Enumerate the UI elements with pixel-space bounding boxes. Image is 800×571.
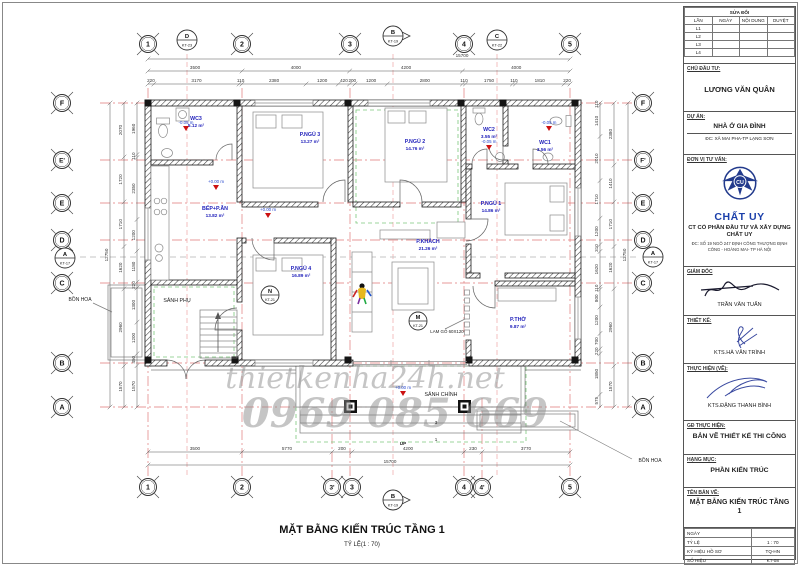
svg-text:230: 230 [469, 446, 477, 451]
svg-text:3': 3' [329, 484, 335, 491]
project-label: DỰ ÁN: [687, 114, 792, 120]
stage-section: GĐ THỰC HIỆN: BẢN VẼ THIẾT KẾ THI CÔNG [684, 421, 795, 455]
svg-text:110: 110 [510, 78, 518, 83]
svg-text:1: 1 [146, 484, 150, 491]
revision-cell [712, 49, 740, 57]
svg-text:220: 220 [147, 78, 155, 83]
room-label: WC13.56 m² [537, 140, 554, 152]
elevation-marker: -0.05 m [542, 120, 557, 131]
svg-text:2800: 2800 [420, 78, 431, 83]
room-label: P.KHÁCH21.26 m² [416, 238, 440, 251]
revision-col: LẦN [685, 17, 713, 25]
annotation-text: LAM GỖ 60X120 [430, 329, 464, 334]
svg-text:KT-21: KT-21 [413, 324, 423, 328]
svg-text:KT-23: KT-23 [182, 44, 192, 48]
room-label: WC23.55 m² [481, 127, 498, 139]
svg-text:4: 4 [462, 484, 466, 491]
grid-bubble: 2 [231, 476, 253, 498]
grid-bubble: F [51, 92, 73, 114]
annotation-text: BỒN HOA [68, 296, 92, 303]
section-marker: CKT-22 [487, 30, 507, 50]
svg-text:1750: 1750 [484, 78, 495, 83]
drawing-name-section: TÊN BẢN VẼ: MẶT BẰNG KIẾN TRÚC TẦNG 1 [684, 488, 795, 528]
grid-bubble: E' [51, 149, 73, 171]
svg-text:KT-17: KT-17 [648, 261, 658, 265]
svg-text:1570: 1570 [131, 381, 136, 392]
room-label: P.NGỦ 416.89 m² [291, 265, 312, 278]
svg-text:3770: 3770 [521, 446, 532, 451]
svg-text:4200: 4200 [403, 446, 414, 451]
svg-text:P.NGỦ 4: P.NGỦ 4 [291, 265, 312, 272]
grid-bubble: D [51, 229, 73, 251]
svg-text:A: A [59, 404, 64, 411]
svg-text:420: 420 [340, 78, 348, 83]
svg-text:F: F [641, 100, 646, 107]
svg-text:21.26 m²: 21.26 m² [419, 246, 438, 251]
info-table: NGÀY TỶ LỆ1 : 70 KÝ HIỆU HỒ SƠTQ-HN SỐ H… [684, 528, 795, 565]
svg-text:110: 110 [594, 284, 599, 292]
svg-text:1410: 1410 [608, 178, 613, 189]
info-label: TỶ LỆ [685, 538, 752, 547]
svg-text:4200: 4200 [401, 65, 412, 70]
svg-text:110: 110 [131, 152, 136, 160]
grid-bubble: 1 [137, 476, 159, 498]
revision-col: NỘI DUNG [740, 17, 768, 25]
svg-text:2070: 2070 [118, 124, 123, 135]
room-label: P.NGỦ 313.27 m² [300, 131, 321, 144]
section-marker: BKT-19 [383, 26, 410, 46]
room-label: SẢNH CHÍNH [425, 391, 458, 398]
svg-text:700: 700 [594, 337, 599, 345]
consultant-section: ĐƠN VỊ TƯ VẤN: CU CHẤT UY CT CỔ PHẦN ĐẦU… [684, 155, 795, 267]
svg-text:A: A [640, 404, 645, 411]
room-label: P.NGỦ 214.76 m² [405, 138, 426, 151]
project-address: ĐC: XÃ MAI PHA-TP LẠNG SƠN [687, 133, 792, 141]
grid-bubble: C [51, 272, 73, 294]
revision-title: SỬA ĐỔI [685, 8, 795, 17]
floor-plan-svg: thietkenha24h.net 0969 085 669 12345123'… [0, 0, 680, 566]
designer-signature [695, 324, 785, 349]
svg-text:1200: 1200 [131, 332, 136, 343]
grid-bubble: B [51, 352, 73, 374]
svg-text:4000: 4000 [511, 65, 522, 70]
svg-text:+0.00 m: +0.00 m [395, 385, 411, 390]
logo-monogram: CU [736, 180, 744, 186]
svg-text:C: C [59, 280, 64, 287]
svg-text:310: 310 [594, 244, 599, 252]
dimension-row: 2203170110238012004202001200280011017501… [146, 78, 573, 86]
svg-text:3500: 3500 [190, 65, 201, 70]
director-signature [695, 275, 785, 301]
svg-text:1960: 1960 [131, 123, 136, 134]
svg-text:3: 3 [348, 41, 352, 48]
grid-bubble: 4' [471, 476, 493, 498]
owner-section: CHỦ ĐẦU TƯ: LƯƠNG VĂN QUÂN [684, 64, 795, 112]
room-label: P.THỜ9.87 m² [510, 315, 527, 329]
revision-row-label: L1 [685, 25, 713, 33]
svg-text:12750: 12750 [622, 248, 627, 261]
revision-row-label: L3 [685, 41, 713, 49]
info-label: NGÀY [685, 529, 752, 538]
section-marker: BKT-19 [383, 490, 410, 510]
svg-text:1570: 1570 [608, 381, 613, 392]
watermark-phone: 0969 085 669 [242, 390, 548, 437]
svg-text:P.NGỦ 2: P.NGỦ 2 [405, 138, 426, 145]
consultant-label: ĐƠN VỊ TƯ VẤN: [687, 157, 792, 163]
svg-text:E: E [641, 200, 646, 207]
info-value [751, 529, 794, 538]
revision-cell [740, 33, 768, 41]
grid-bubble: E [632, 192, 654, 214]
director-name: TRẦN VĂN TUẤN [687, 302, 792, 308]
svg-text:WC1: WC1 [539, 140, 551, 146]
svg-text:12750: 12750 [104, 248, 109, 261]
wood-louver [465, 290, 470, 335]
svg-text:1620: 1620 [594, 264, 599, 275]
svg-text:3170: 3170 [191, 78, 202, 83]
revision-row-label: L2 [685, 33, 713, 41]
floor-plan: thietkenha24h.net 0969 085 669 12345123'… [0, 0, 680, 566]
revision-cell [712, 25, 740, 33]
grid-bubble: B [632, 352, 654, 374]
svg-text:+0.00 m: +0.00 m [208, 179, 224, 184]
svg-text:D: D [640, 237, 645, 244]
svg-text:-0.05 m: -0.05 m [482, 139, 497, 144]
detail-marker: MKT-21 [409, 312, 427, 330]
svg-text:3.56 m²: 3.56 m² [537, 147, 554, 152]
svg-text:5: 5 [568, 41, 572, 48]
svg-text:F': F' [640, 157, 646, 164]
revision-row-label: L4 [685, 49, 713, 57]
annotation-text: BỒN HOA [638, 457, 662, 464]
svg-text:SẢNH PHỤ: SẢNH PHỤ [163, 297, 191, 304]
grid-bubble: C [632, 272, 654, 294]
company-logo: CU [687, 164, 792, 211]
detail-marker: NKT-21 [261, 286, 279, 304]
svg-text:2010: 2010 [594, 153, 599, 164]
title-block: SỬA ĐỔI LẦN NGÀY NỘI DUNG DUYỆT L1L2L3L4… [683, 6, 796, 560]
revision-cell [740, 41, 768, 49]
company-address: ĐC: SỐ 19 NGÕ 247 ĐỊNH CÔNG THƯỢNG ĐỊNH … [687, 241, 792, 252]
svg-text:1: 1 [146, 41, 150, 48]
svg-text:110: 110 [237, 78, 245, 83]
room-label: BẾP+P.ĂN13.82 m² [202, 205, 228, 218]
revision-cell [740, 49, 768, 57]
svg-text:2960: 2960 [608, 322, 613, 333]
director-section: GIÁM ĐỐC TRẦN VĂN TUẤN [684, 267, 795, 316]
project-section: DỰ ÁN: NHÀ Ở GIA ĐÌNH ĐC: XÃ MAI PHA-TP … [684, 112, 795, 155]
svg-text:-0.05 m: -0.05 m [542, 120, 557, 125]
svg-text:13.27 m²: 13.27 m² [301, 139, 320, 144]
stage-label: GĐ THỰC HIỆN: [687, 423, 792, 429]
grid-bubble: 4 [453, 33, 475, 55]
svg-text:KT-17: KT-17 [60, 262, 70, 266]
grid-bubble: 1 [137, 33, 159, 55]
grid-bubble: 5 [559, 33, 581, 55]
svg-text:800: 800 [594, 294, 599, 302]
category-value: PHẦN KIẾN TRÚC [687, 467, 792, 474]
svg-text:SẢNH CHÍNH: SẢNH CHÍNH [425, 391, 458, 398]
svg-text:1710: 1710 [594, 194, 599, 205]
designer-name: KTS.HÀ VĂN TRÌNH [687, 350, 792, 356]
svg-text:220: 220 [131, 281, 136, 289]
svg-text:1810: 1810 [535, 78, 546, 83]
drafter-name: KTS.ĐẶNG THANH BÌNH [687, 403, 792, 409]
svg-text:14.86 m²: 14.86 m² [482, 208, 501, 213]
svg-text:5770: 5770 [282, 446, 293, 451]
svg-text:15700: 15700 [456, 53, 469, 58]
elevation-marker: +0.00 m [260, 207, 276, 218]
svg-text:1620: 1620 [118, 262, 123, 273]
grid-bubble: 2 [231, 33, 253, 55]
svg-text:3: 3 [350, 484, 354, 491]
dimension-total-top: 15700 [146, 53, 573, 61]
project-name: NHÀ Ở GIA ĐÌNH [687, 123, 792, 130]
drafter-section: THỰC HIỆN (VẼ): KTS.ĐẶNG THANH BÌNH [684, 364, 795, 421]
svg-text:16.89 m²: 16.89 m² [292, 273, 311, 278]
svg-text:2: 2 [240, 484, 244, 491]
info-value: 1 : 70 [751, 538, 794, 547]
elevation-marker: -0.05 m [482, 139, 497, 150]
svg-text:4': 4' [479, 484, 485, 491]
owner-label: CHỦ ĐẦU TƯ: [687, 66, 792, 72]
grid-bubble: A [51, 396, 73, 418]
info-label: KÝ HIỆU HỒ SƠ [685, 547, 752, 556]
stage-value: BẢN VẼ THIẾT KẾ THI CÔNG [687, 433, 792, 440]
drawing-name-label: TÊN BẢN VẼ: [687, 490, 792, 496]
annotation-text: 1 [435, 437, 438, 442]
drawing-scale: TỶ LỆ(1 : 70) [344, 540, 380, 548]
svg-text:4: 4 [462, 41, 466, 48]
svg-text:KT-22: KT-22 [492, 44, 502, 48]
grid-bubble: 3 [339, 33, 361, 55]
svg-text:5: 5 [568, 484, 572, 491]
svg-text:P.THỜ: P.THỜ [510, 315, 526, 323]
grid-bubble: F [632, 92, 654, 114]
svg-text:D: D [185, 34, 189, 40]
revision-cell [767, 41, 795, 49]
svg-text:1200: 1200 [366, 78, 377, 83]
owner-name: LƯƠNG VĂN QUÂN [687, 85, 792, 94]
dimension-total-bottom: 15700 [146, 459, 573, 467]
revision-cell [712, 41, 740, 49]
svg-text:9.87 m²: 9.87 m² [510, 324, 527, 329]
svg-text:2350: 2350 [131, 183, 136, 194]
svg-text:1300: 1300 [131, 300, 136, 311]
svg-text:B: B [59, 360, 64, 367]
svg-text:P.NGỦ 1: P.NGỦ 1 [481, 200, 502, 207]
svg-text:C: C [640, 280, 645, 287]
info-label: SỐ HIỆU [685, 556, 752, 565]
svg-text:220: 220 [594, 347, 599, 355]
grid-bubble: 5 [559, 476, 581, 498]
grid-bubble: A [632, 396, 654, 418]
svg-text:1720: 1720 [118, 174, 123, 185]
svg-text:1200: 1200 [131, 230, 136, 241]
svg-text:110: 110 [594, 100, 599, 108]
svg-text:575: 575 [594, 396, 599, 404]
dimension-row: 3500400042004000 [146, 65, 573, 73]
svg-text:4000: 4000 [291, 65, 302, 70]
category-label: HẠNG MỤC: [687, 457, 792, 463]
annotation-text: UP [400, 441, 406, 446]
svg-text:1620: 1620 [608, 262, 613, 273]
svg-text:200: 200 [348, 78, 356, 83]
svg-text:1570: 1570 [118, 381, 123, 392]
svg-text:2: 2 [240, 41, 244, 48]
svg-text:1200: 1200 [594, 226, 599, 237]
svg-text:-0.05 m: -0.05 m [179, 120, 194, 125]
svg-text:E: E [60, 200, 65, 207]
grid-bubble: 4 [453, 476, 475, 498]
svg-text:1200: 1200 [594, 315, 599, 326]
svg-text:1710: 1710 [608, 219, 613, 230]
svg-text:1710: 1710 [118, 219, 123, 230]
svg-text:1200: 1200 [317, 78, 328, 83]
svg-text:D: D [59, 237, 64, 244]
svg-text:M: M [416, 315, 421, 321]
svg-text:15700: 15700 [384, 459, 397, 464]
svg-text:B: B [391, 30, 395, 36]
svg-text:E': E' [59, 157, 65, 164]
svg-text:2380: 2380 [608, 129, 613, 140]
room-label: SẢNH PHỤ [163, 297, 191, 304]
svg-text:200: 200 [338, 446, 346, 451]
svg-text:P.KHÁCH: P.KHÁCH [416, 238, 440, 245]
revision-cell [767, 49, 795, 57]
revision-col: NGÀY [712, 17, 740, 25]
svg-text:KT-19: KT-19 [388, 40, 398, 44]
info-value: KT-08 [751, 556, 794, 565]
brand-name: CHẤT UY [687, 211, 792, 223]
svg-text:P.NGỦ 3: P.NGỦ 3 [300, 131, 321, 138]
svg-text:+0.00 m: +0.00 m [260, 207, 276, 212]
svg-text:BẾP+P.ĂN: BẾP+P.ĂN [202, 205, 228, 212]
revision-table: SỬA ĐỔI LẦN NGÀY NỘI DUNG DUYỆT L1L2L3L4 [684, 7, 795, 64]
room-label: P.NGỦ 114.86 m² [481, 200, 502, 213]
svg-text:3500: 3500 [190, 446, 201, 451]
svg-text:1180: 1180 [131, 261, 136, 271]
revision-col: DUYỆT [767, 17, 795, 25]
category-section: HẠNG MỤC: PHẦN KIẾN TRÚC [684, 455, 795, 488]
svg-text:N: N [268, 289, 272, 295]
svg-text:110: 110 [460, 78, 468, 83]
svg-text:KT-19: KT-19 [388, 504, 398, 508]
grid-bubble: E [51, 192, 73, 214]
svg-text:220: 220 [563, 78, 571, 83]
svg-text:13.82 m²: 13.82 m² [206, 213, 225, 218]
svg-text:KT-21: KT-21 [265, 298, 275, 302]
svg-text:WC2: WC2 [483, 127, 495, 133]
grid-bubble: 3 [341, 476, 363, 498]
elevation-marker: +0.00 m [208, 179, 224, 190]
designer-section: THIẾT KẾ: KTS.HÀ VĂN TRÌNH [684, 316, 795, 364]
svg-text:F: F [60, 100, 65, 107]
drawing-sheet: { "sheet": { "title": "MẶT BẰNG KIẾN TRÚ… [0, 0, 800, 566]
section-marker: AKT-17 [55, 248, 75, 268]
svg-text:14.76 m²: 14.76 m² [406, 146, 425, 151]
info-value: TQ-HN [751, 547, 794, 556]
revision-cell [712, 33, 740, 41]
grid-bubble: F' [632, 149, 654, 171]
revision-cell [767, 33, 795, 41]
drawing-name-value: MẶT BẰNG KIẾN TRÚC TẦNG 1 [687, 499, 792, 517]
drawing-title: MẶT BẰNG KIẾN TRÚC TẦNG 1 [279, 523, 445, 536]
svg-text:1850: 1850 [594, 368, 599, 379]
revision-cell [767, 25, 795, 33]
svg-text:450: 450 [131, 355, 136, 363]
section-marker: DKT-23 [177, 30, 197, 50]
svg-text:2960: 2960 [118, 322, 123, 333]
svg-text:B: B [640, 360, 645, 367]
svg-text:B: B [391, 494, 395, 500]
svg-text:2380: 2380 [269, 78, 280, 83]
section-marker: AKT-17 [643, 247, 663, 267]
drafter-signature [695, 372, 785, 402]
dimension-row: 3500577020042002303770 [146, 446, 573, 454]
grid-bubble: 3' [321, 476, 343, 498]
revision-cell [740, 25, 768, 33]
svg-text:1410: 1410 [594, 115, 599, 126]
watermarks: thietkenha24h.net 0969 085 669 [225, 361, 548, 437]
annotation-text: 3 [435, 420, 438, 425]
company-name: CT CỔ PHẦN ĐẦU TƯ VÀ XÂY DỰNG CHẤT UY [687, 225, 792, 239]
